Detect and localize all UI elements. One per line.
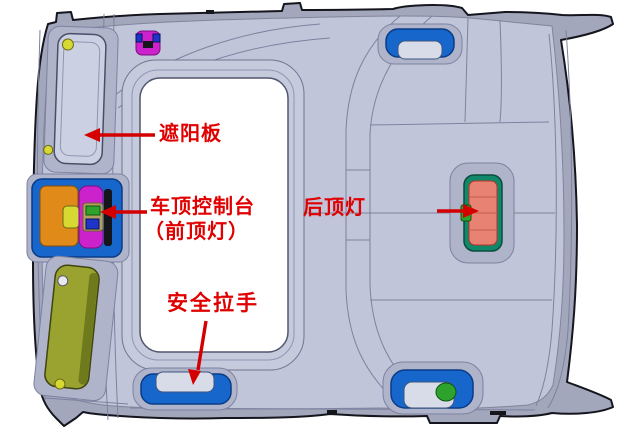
rear-dome-light [450, 163, 514, 263]
label-roof-console: 车顶控制台 （前顶灯） [150, 195, 255, 245]
label-roof-console-line2: （前顶灯） [144, 220, 255, 245]
visor-pivot-mount [57, 275, 68, 286]
grab-handle-rear-left [383, 362, 483, 414]
handle-clip [436, 383, 456, 401]
front-sun-visor [43, 26, 119, 174]
label-roof-console-line1: 车顶控制台 [150, 195, 255, 220]
overhead-console [27, 174, 129, 262]
diagram-canvas: 遮阳板 车顶控制台 （前顶灯） 后顶灯 安全拉手 [0, 0, 640, 434]
label-rear-dome-light: 后顶灯 [303, 196, 366, 221]
label-safety-grab-handle: 安全拉手 [167, 291, 259, 316]
console-latch [63, 206, 79, 228]
grab-handle-rear-right [378, 24, 462, 64]
visor-clip [44, 145, 53, 154]
roof-sensor [136, 31, 160, 55]
folded-sun-visor [33, 255, 119, 402]
grab-handle-front-left [133, 368, 237, 410]
label-sun-visor: 遮阳板 [159, 122, 222, 147]
visor-pivot-mount [62, 39, 73, 50]
visor-clip [54, 379, 65, 390]
